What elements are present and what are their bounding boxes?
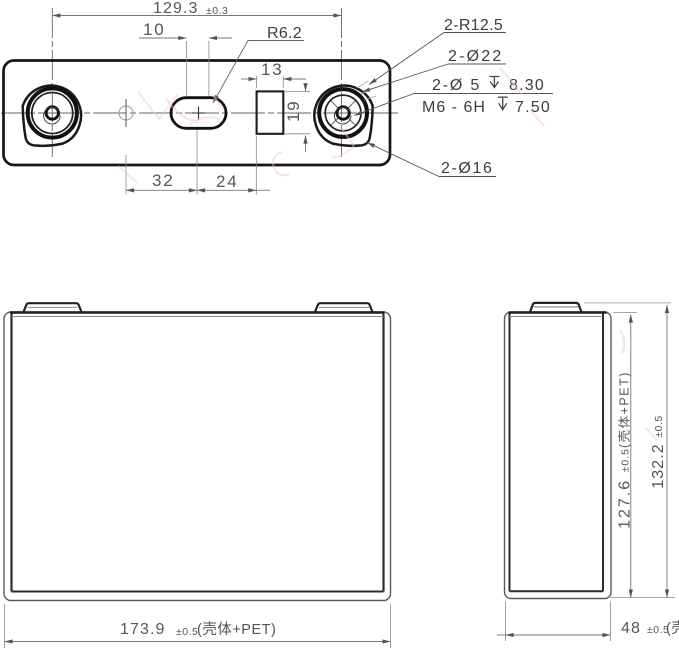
- svg-text:48: 48: [621, 620, 641, 637]
- svg-text:32: 32: [152, 171, 175, 190]
- svg-text:±0.5: ±0.5: [176, 626, 198, 638]
- svg-text:173.9: 173.9: [120, 621, 166, 638]
- svg-text:24: 24: [216, 172, 239, 191]
- svg-text:10: 10: [143, 20, 166, 39]
- svg-text:2-R12.5: 2-R12.5: [444, 17, 503, 34]
- svg-text:(壳体+PET): (壳体+PET): [197, 621, 276, 638]
- svg-text:R6.2: R6.2: [267, 25, 302, 42]
- svg-text:(壳: (壳: [666, 620, 679, 637]
- svg-text:M6 - 6H: M6 - 6H: [422, 99, 486, 116]
- svg-text:19: 19: [284, 99, 303, 122]
- svg-text:127.6 ±0.5(壳体+PET): 127.6 ±0.5(壳体+PET): [617, 371, 634, 529]
- svg-text:13: 13: [261, 60, 284, 79]
- svg-text:132.2 ±0.5: 132.2 ±0.5: [650, 415, 667, 488]
- svg-text:2-Ø16: 2-Ø16: [441, 160, 493, 177]
- svg-text:2-Ø22: 2-Ø22: [448, 48, 503, 65]
- svg-text:±0.3: ±0.3: [206, 5, 228, 17]
- svg-text:2-Ø 5: 2-Ø 5: [432, 77, 481, 94]
- svg-text:129.3: 129.3: [153, 0, 199, 17]
